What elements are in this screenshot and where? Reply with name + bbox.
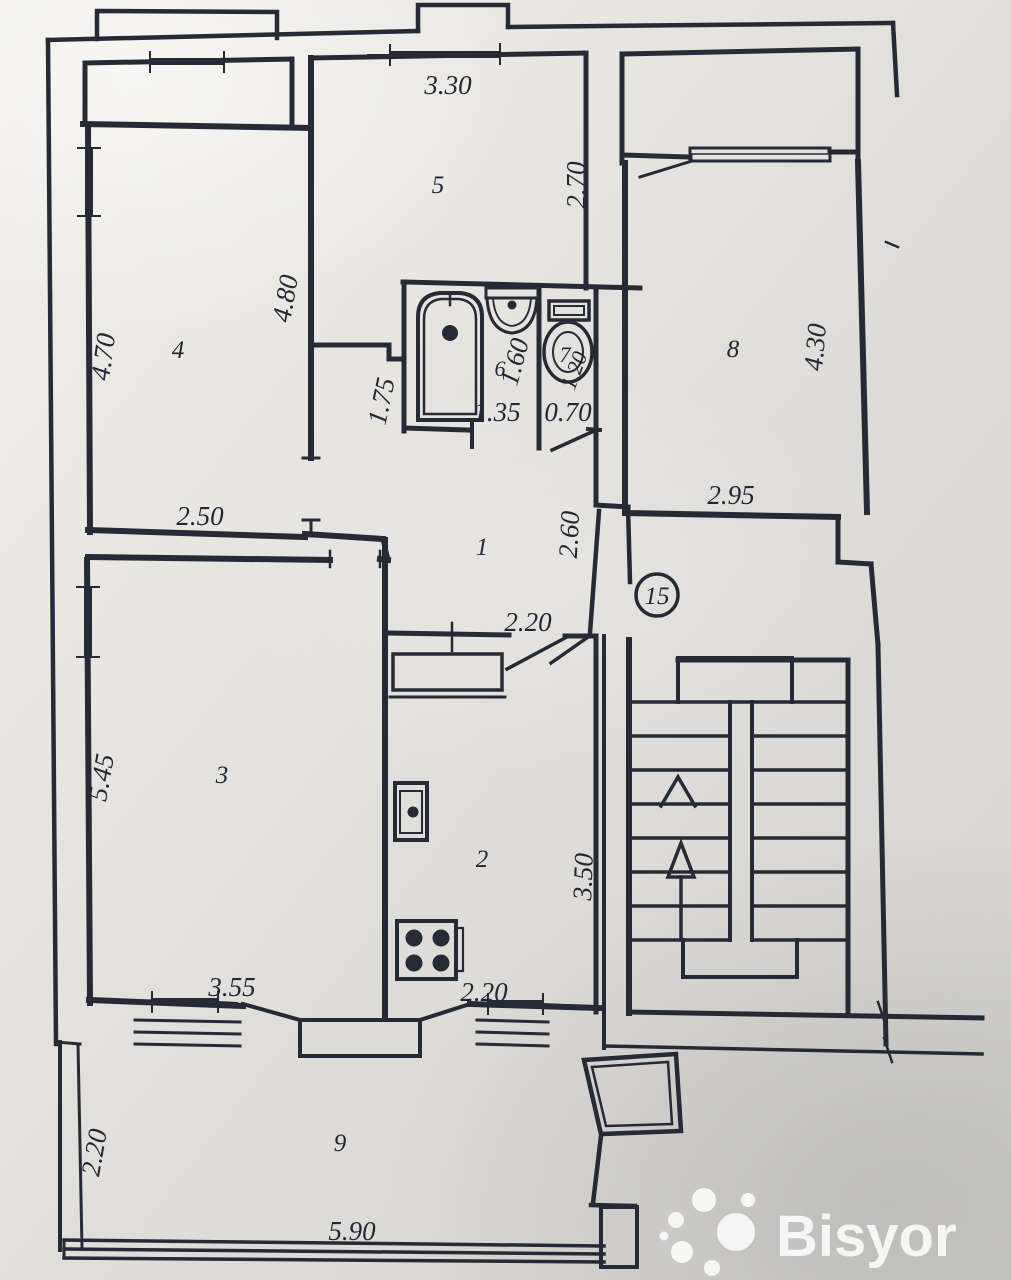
dim-kitchen-width: 2.20 [460, 977, 508, 1007]
dim-bath-depth: 1.60 [494, 334, 535, 388]
dim-hall-depth: 2.60 [553, 510, 585, 559]
entrance-door-leaf [551, 635, 591, 663]
kitchen-counter [390, 654, 505, 697]
dim-room3-width: 3.55 [207, 972, 255, 1002]
dim-bath-width: 1.35 [473, 397, 520, 427]
sink-icon [486, 288, 538, 333]
stair-direction-arrow [661, 777, 695, 940]
dim-corridor: 1.75 [362, 375, 401, 427]
dim-room4-width: 2.50 [176, 501, 224, 531]
dim-room8-depth: 4.30 [798, 322, 832, 372]
staircase [629, 640, 982, 1026]
kitchen-door-leaf [507, 638, 565, 669]
room-number-2: 2 [476, 846, 489, 873]
hallway-walls [385, 433, 630, 1016]
veranda-porch [243, 1004, 470, 1056]
room-number-3: 3 [215, 762, 229, 789]
room-number-5: 5 [432, 172, 445, 199]
floor-plan-photo: 4 5 6 7 8 1 3 2 9 15 3.30 2.70 4.70 4.80… [0, 0, 1011, 1280]
apartment-number-badge: 15 [636, 574, 678, 616]
bisyor-logo-icon [660, 1188, 756, 1276]
dim-kitchen-depth: 3.50 [567, 852, 599, 902]
room4-walls [83, 58, 388, 560]
kitchen-sink-icon [395, 783, 427, 840]
dim-room5-width: 3.30 [423, 70, 472, 100]
dim-room5-depth: 2.70 [561, 161, 591, 209]
room8-balcony-window [690, 148, 830, 161]
room5-window [368, 44, 523, 65]
floor-plan-drawing: 4 5 6 7 8 1 3 2 9 15 3.30 2.70 4.70 4.80… [0, 0, 1011, 1280]
room3-side-window [77, 572, 99, 673]
room4-side-window [78, 132, 100, 233]
dim-veranda-width: 5.90 [328, 1216, 376, 1246]
balcony4-window [132, 52, 244, 72]
bottom-outer-wall [604, 1038, 982, 1062]
dim-toilet-width: 0.70 [544, 397, 592, 427]
bisyor-logo-text: Bisyor [776, 1204, 957, 1269]
corridor-walls [311, 345, 404, 359]
room8-door-leaf [640, 161, 692, 177]
apartment-number: 15 [645, 583, 670, 610]
room-number-1: 1 [476, 534, 489, 561]
dim-room4-left: 4.70 [85, 331, 121, 382]
toilet-door-leaf [552, 431, 594, 450]
dim-hall-width: 2.20 [504, 607, 552, 637]
bisyor-watermark: Bisyor [660, 1188, 957, 1276]
stove-icon [397, 921, 463, 979]
room-number-9: 9 [334, 1130, 347, 1157]
room-number-4: 4 [172, 337, 185, 364]
room-number-8: 8 [727, 336, 740, 363]
outer-right-wall [871, 564, 886, 1044]
dim-room8-width: 2.95 [707, 480, 754, 510]
room3-walls [87, 551, 388, 1006]
dim-room4-right: 4.80 [266, 272, 304, 324]
